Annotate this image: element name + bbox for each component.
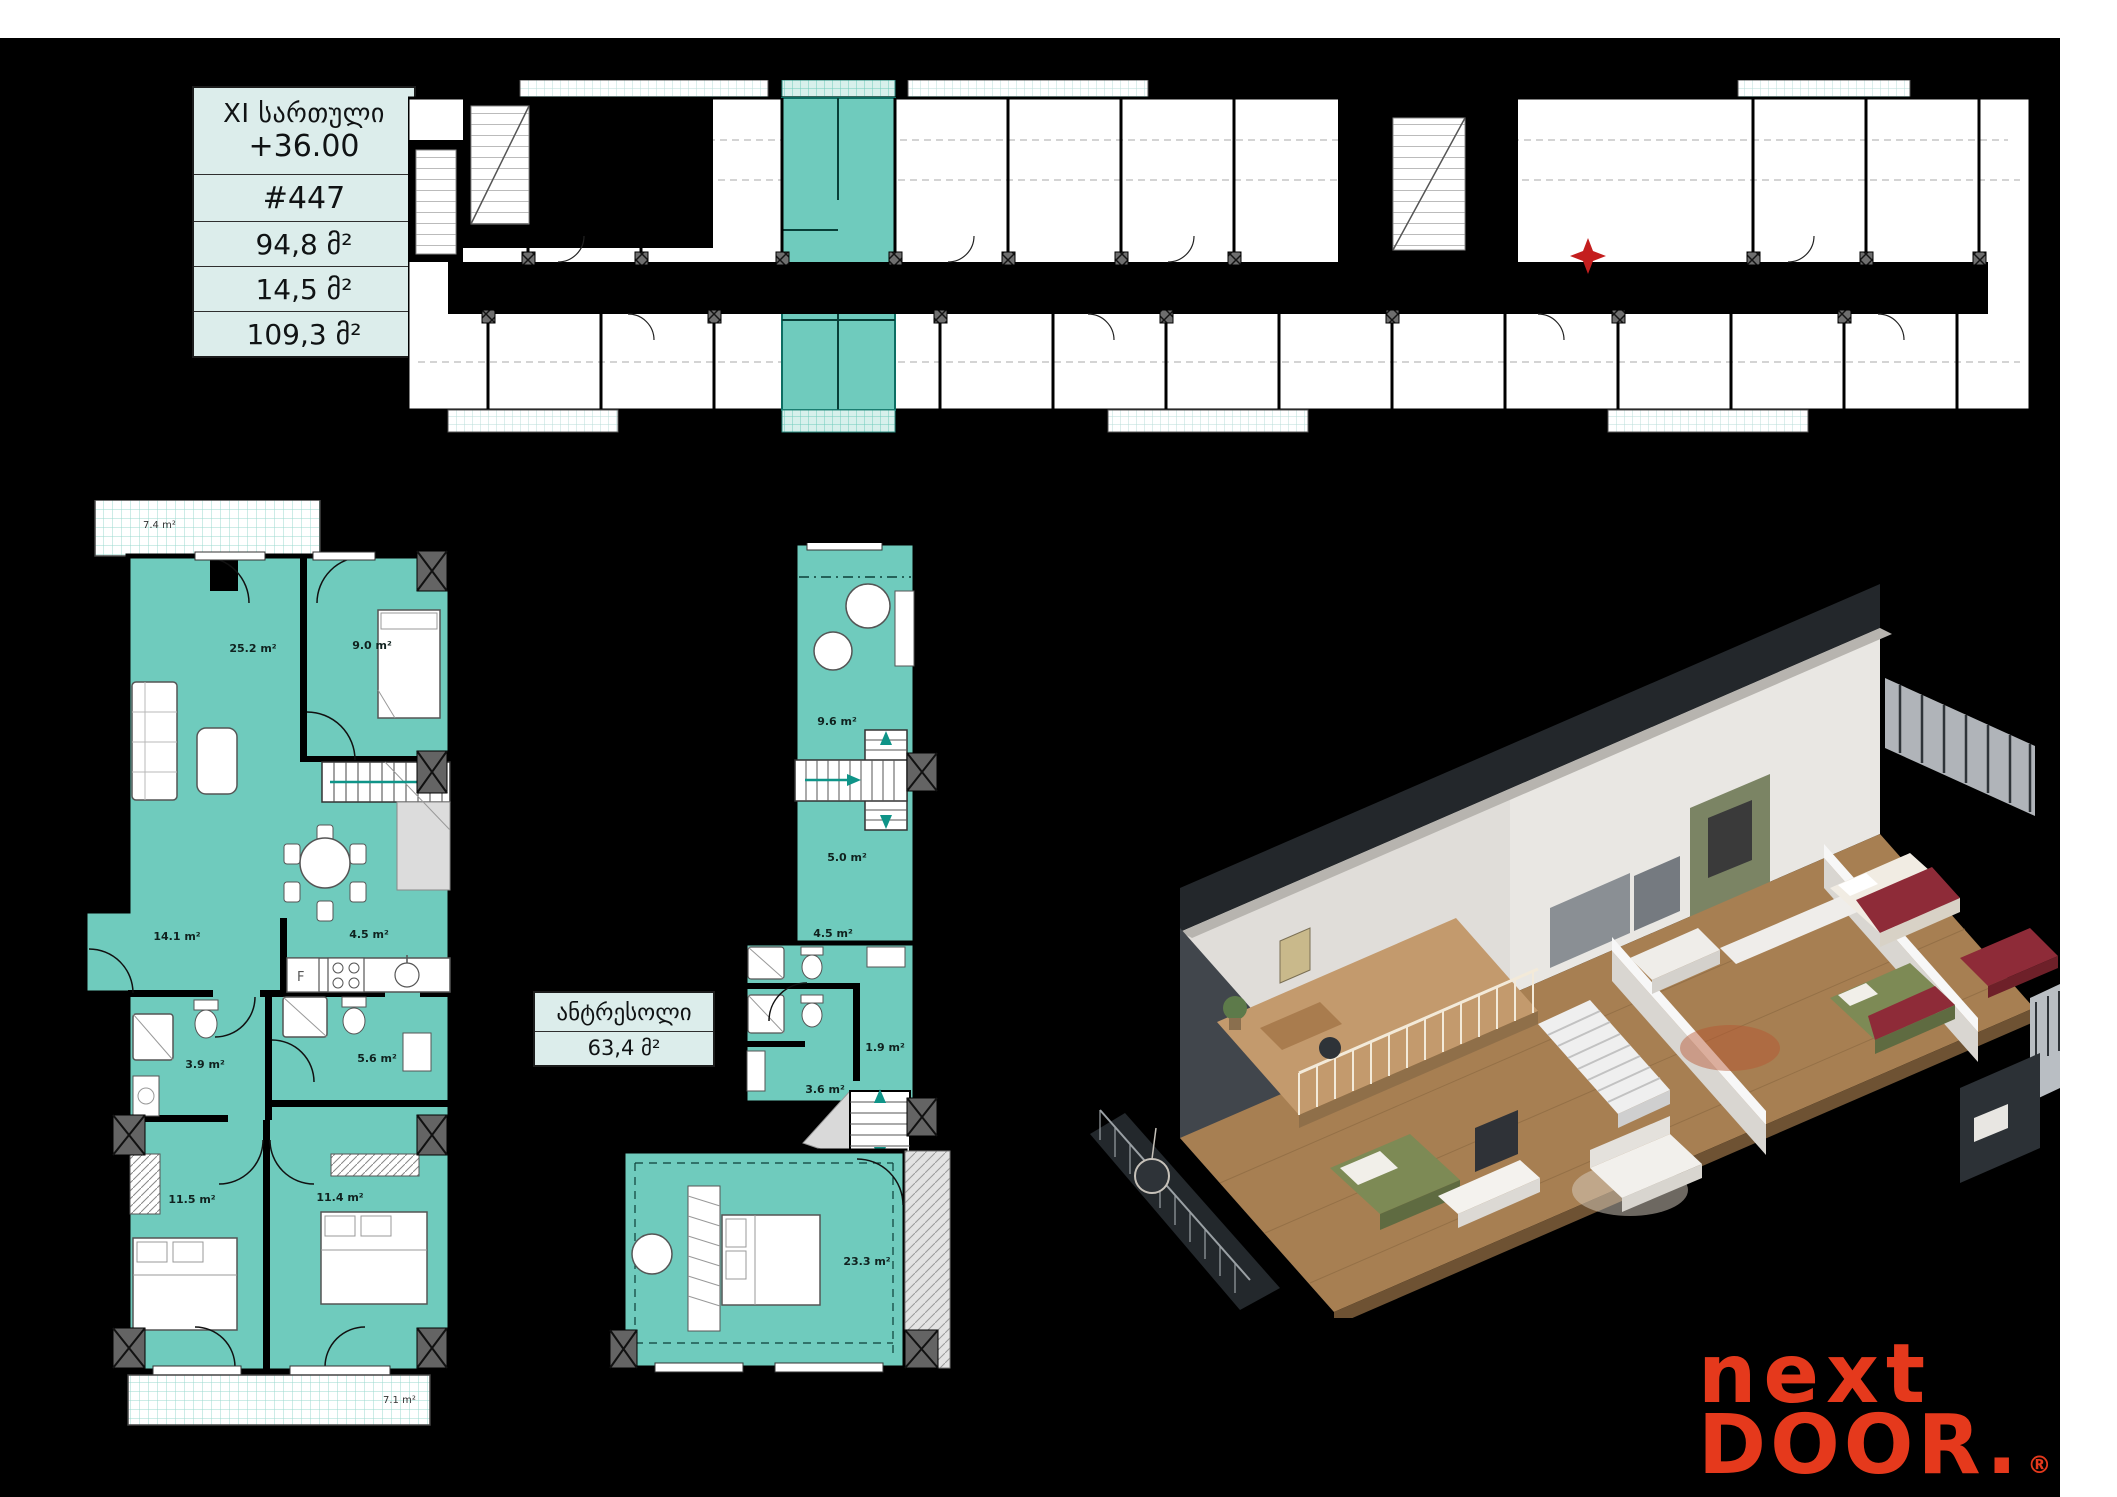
floor-header: XI სართული +36.00 bbox=[194, 88, 414, 174]
black-canvas: XI სართული +36.00 #447 94,8 მ² 14,5 მ² 1… bbox=[0, 38, 2060, 1497]
bathroom-1-label: 3.9 m² bbox=[185, 1058, 225, 1071]
toilet-2 bbox=[342, 997, 366, 1034]
living-label: 25.2 m² bbox=[229, 642, 276, 655]
dark-volume-right bbox=[1960, 1053, 2040, 1183]
wardrobe-mezz bbox=[688, 1186, 720, 1331]
balcony-bottom-label: 7.1 m² bbox=[383, 1395, 416, 1406]
overview-balconies-top bbox=[520, 80, 1910, 98]
lower-floor-plan: 7.4 m² bbox=[85, 500, 455, 1435]
cabinet bbox=[403, 1033, 431, 1071]
washer bbox=[133, 1076, 159, 1116]
floor-label: XI სართული bbox=[223, 99, 385, 129]
mezzanine-bath-block bbox=[745, 943, 915, 1103]
wardrobe-1 bbox=[130, 1154, 160, 1214]
round-chair bbox=[632, 1234, 672, 1274]
window-mezz-2 bbox=[775, 1363, 883, 1372]
area-total: 109,3 მ² bbox=[194, 311, 414, 356]
laundry-label: 9.6 m² bbox=[817, 715, 857, 728]
logo-door-text: DOOR bbox=[1698, 1398, 1986, 1493]
kitchen-label: 4.5 m² bbox=[349, 928, 389, 941]
balcony-bottom: 7.1 m² bbox=[128, 1375, 430, 1425]
bath-hall-label: 4.5 m² bbox=[813, 927, 853, 940]
toilet bbox=[194, 1000, 218, 1038]
closet-shelf bbox=[895, 591, 914, 666]
patterned-rug bbox=[1680, 1025, 1780, 1071]
balcony-top-label: 7.4 m² bbox=[143, 520, 176, 531]
bed-mezz bbox=[722, 1215, 820, 1305]
stair-core-center bbox=[1338, 98, 1518, 262]
coffee-table bbox=[197, 728, 237, 794]
bathroom-mezz-label: 3.6 m² bbox=[805, 1083, 845, 1096]
bedroom-1-label: 11.5 m² bbox=[168, 1193, 215, 1206]
toilet-mezz bbox=[801, 947, 823, 979]
registered-mark: ® bbox=[2027, 1451, 2055, 1479]
hall-mezz-label: 5.0 m² bbox=[827, 851, 867, 864]
round-fixture-1 bbox=[846, 584, 890, 628]
plan-sheet: { "page": {"background": "#ffffff", "can… bbox=[0, 0, 2117, 1497]
corridor bbox=[448, 262, 1988, 314]
bed-2 bbox=[321, 1212, 427, 1304]
round-fixture-2 bbox=[814, 632, 852, 670]
unit-number: #447 bbox=[194, 174, 414, 221]
toilet-mezz-2 bbox=[801, 995, 823, 1027]
bathroom-2-label: 5.6 m² bbox=[357, 1052, 397, 1065]
mezzanine-floor-plan: 9.6 m² 5.0 m² 4.5 m² 1.9 m² 3.6 m² 23.3 … bbox=[595, 543, 960, 1433]
unit-info-box: XI სართული +36.00 #447 94,8 მ² 14,5 მ² 1… bbox=[192, 86, 416, 358]
sofa bbox=[132, 682, 177, 800]
kitchen-fixtures: F bbox=[287, 955, 450, 992]
shower-mezz bbox=[748, 947, 784, 979]
area-apartment: 94,8 მ² bbox=[194, 221, 414, 266]
bedroom-2-furniture bbox=[321, 1154, 427, 1304]
fridge-label: F bbox=[297, 970, 304, 985]
logo-dot: . bbox=[1986, 1398, 2021, 1493]
nextdoor-logo: next DOOR.® bbox=[1698, 1340, 2055, 1481]
bedroom-2-label: 11.4 m² bbox=[316, 1191, 363, 1204]
stove bbox=[328, 958, 364, 992]
bedroom-small-label: 9.0 m² bbox=[352, 639, 392, 652]
shower-mezz-2 bbox=[748, 995, 784, 1033]
cabinet-mezz bbox=[747, 1051, 765, 1091]
window-mezz-1 bbox=[655, 1363, 743, 1372]
render-3d-cutaway bbox=[1030, 528, 2060, 1318]
bed-small bbox=[378, 610, 440, 718]
bed-1 bbox=[133, 1238, 237, 1330]
sink-mezz bbox=[867, 947, 905, 967]
elevation-value: +36.00 bbox=[248, 129, 359, 164]
balcony-upper-right bbox=[1885, 678, 2035, 816]
wardrobe-2 bbox=[331, 1154, 419, 1176]
hall-label: 14.1 m² bbox=[153, 930, 200, 943]
bedroom-mezz-label: 23.3 m² bbox=[843, 1255, 890, 1268]
building-overview-plan bbox=[408, 80, 2030, 438]
area-balcony: 14,5 მ² bbox=[194, 266, 414, 311]
logo-line-door: DOOR.® bbox=[1698, 1411, 2055, 1482]
overview-balconies-bottom bbox=[448, 410, 1808, 432]
closet-label: 1.9 m² bbox=[865, 1041, 905, 1054]
balcony-top: 7.4 m² bbox=[95, 500, 320, 556]
